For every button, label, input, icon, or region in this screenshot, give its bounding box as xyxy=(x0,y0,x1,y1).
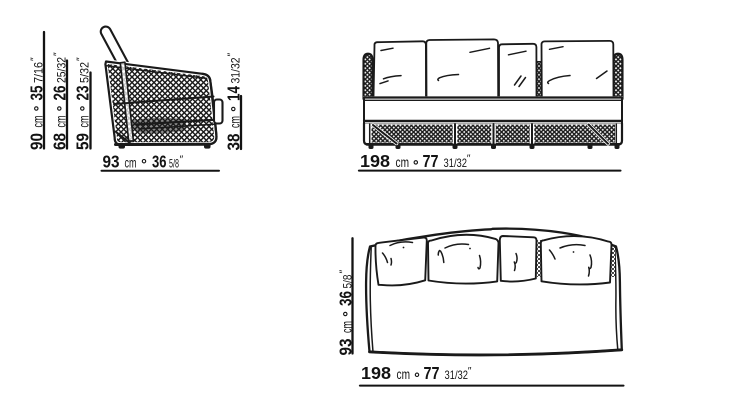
svg-text:5/32: 5/32 xyxy=(78,62,92,83)
svg-text:31/32: 31/32 xyxy=(229,57,243,83)
svg-text:68: 68 xyxy=(50,133,70,150)
svg-text:″: ″ xyxy=(337,270,349,274)
svg-text:25/32: 25/32 xyxy=(55,57,69,83)
svg-text:″: ″ xyxy=(28,57,40,61)
svg-text:7/16: 7/16 xyxy=(32,62,46,83)
svg-text:5/8: 5/8 xyxy=(169,157,179,171)
svg-text:93: 93 xyxy=(336,338,356,355)
svg-text:cm: cm xyxy=(396,155,410,170)
svg-text:″: ″ xyxy=(467,153,471,165)
svg-text:″: ″ xyxy=(74,57,86,61)
svg-text:36: 36 xyxy=(336,291,356,306)
svg-text:38: 38 xyxy=(224,133,244,150)
svg-text:59: 59 xyxy=(73,133,93,150)
svg-text:35: 35 xyxy=(27,85,47,100)
svg-text:cm: cm xyxy=(54,116,69,128)
svg-text:cm: cm xyxy=(340,321,355,333)
svg-text:93: 93 xyxy=(103,152,120,172)
svg-text:″: ″ xyxy=(180,153,184,165)
svg-text:198: 198 xyxy=(361,363,391,383)
svg-text:77: 77 xyxy=(424,363,440,383)
svg-text:23: 23 xyxy=(73,85,93,100)
svg-text:198: 198 xyxy=(360,151,390,171)
svg-text:5/8: 5/8 xyxy=(341,274,355,288)
svg-text:″: ″ xyxy=(468,365,472,377)
svg-text:cm: cm xyxy=(125,156,137,171)
svg-text:90: 90 xyxy=(27,133,47,150)
svg-text:36: 36 xyxy=(152,152,167,172)
svg-text:26: 26 xyxy=(50,85,70,100)
svg-text:cm: cm xyxy=(77,116,92,128)
svg-text:″: ″ xyxy=(51,52,63,56)
svg-text:31/32: 31/32 xyxy=(445,368,469,382)
svg-text:77: 77 xyxy=(423,151,439,171)
svg-text:″: ″ xyxy=(225,53,237,57)
svg-text:14: 14 xyxy=(224,86,244,101)
svg-text:31/32: 31/32 xyxy=(444,156,468,170)
svg-text:cm: cm xyxy=(228,116,243,128)
svg-text:cm: cm xyxy=(397,367,411,382)
svg-text:cm: cm xyxy=(31,116,46,128)
